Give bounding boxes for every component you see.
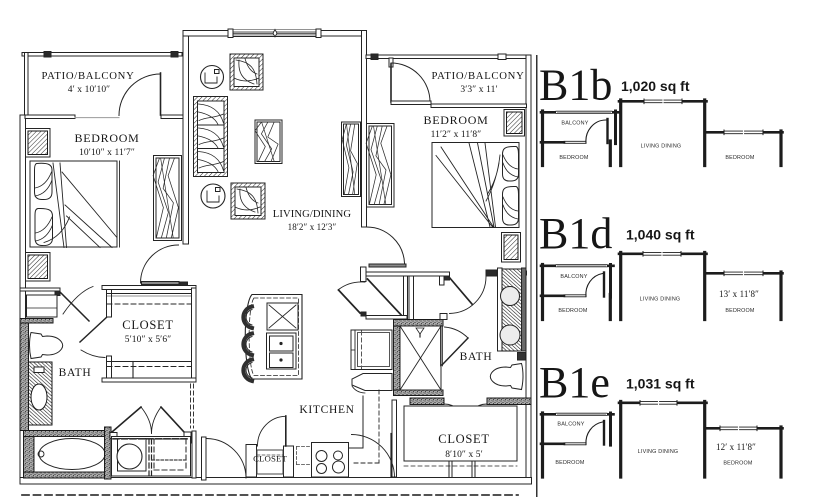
svg-text:3′3″ x 11′: 3′3″ x 11′ <box>460 85 497 95</box>
svg-text:13′ x 11′8″: 13′ x 11′8″ <box>719 289 759 299</box>
svg-text:BATH: BATH <box>460 351 493 363</box>
svg-text:BEDROOM: BEDROOM <box>424 113 489 127</box>
svg-text:BATH: BATH <box>59 367 92 379</box>
svg-text:BALCONY: BALCONY <box>560 274 587 280</box>
svg-text:8′10″ x 5′: 8′10″ x 5′ <box>445 450 483 460</box>
svg-text:KITCHEN: KITCHEN <box>299 404 354 416</box>
svg-text:LIVING/DINING: LIVING/DINING <box>273 209 352 220</box>
svg-text:10′10″ x 11′7″: 10′10″ x 11′7″ <box>79 148 135 158</box>
svg-text:11′2″ x 11′8″: 11′2″ x 11′8″ <box>431 130 482 140</box>
svg-text:4′ x 10′10″: 4′ x 10′10″ <box>68 85 110 95</box>
svg-text:1,040 sq ft: 1,040 sq ft <box>626 227 695 243</box>
svg-text:CLOSET: CLOSET <box>122 318 173 332</box>
svg-text:BEDROOM: BEDROOM <box>75 131 140 145</box>
svg-text:BEDROOM: BEDROOM <box>725 155 755 161</box>
svg-text:1,031 sq ft: 1,031 sq ft <box>626 376 695 392</box>
svg-text:18′2″ x 12′3″: 18′2″ x 12′3″ <box>288 222 337 232</box>
svg-text:BEDROOM: BEDROOM <box>558 308 588 314</box>
svg-text:LIVING DINING: LIVING DINING <box>641 144 682 150</box>
svg-text:BEDROOM: BEDROOM <box>559 155 589 161</box>
svg-text:BEDROOM: BEDROOM <box>725 308 755 314</box>
svg-text:12′ x 11′8″: 12′ x 11′8″ <box>716 442 756 452</box>
svg-text:B1d: B1d <box>539 209 612 258</box>
svg-text:BALCONY: BALCONY <box>557 422 584 428</box>
svg-text:1,020 sq ft: 1,020 sq ft <box>621 78 690 94</box>
svg-text:LIVING DINING: LIVING DINING <box>640 297 681 303</box>
svg-text:B1e: B1e <box>539 358 610 407</box>
svg-text:BALCONY: BALCONY <box>561 121 588 127</box>
svg-text:BEDROOM: BEDROOM <box>555 460 585 466</box>
svg-text:B1b: B1b <box>539 61 612 110</box>
svg-text:CLOSET: CLOSET <box>253 454 287 464</box>
svg-text:5′10″ x 5′6″: 5′10″ x 5′6″ <box>125 335 172 345</box>
svg-text:PATIO/BALCONY: PATIO/BALCONY <box>41 70 134 82</box>
svg-text:BEDROOM: BEDROOM <box>723 461 753 467</box>
svg-text:LIVING DINING: LIVING DINING <box>638 449 679 455</box>
svg-text:CLOSET: CLOSET <box>438 432 489 446</box>
svg-text:PATIO/BALCONY: PATIO/BALCONY <box>431 70 524 82</box>
